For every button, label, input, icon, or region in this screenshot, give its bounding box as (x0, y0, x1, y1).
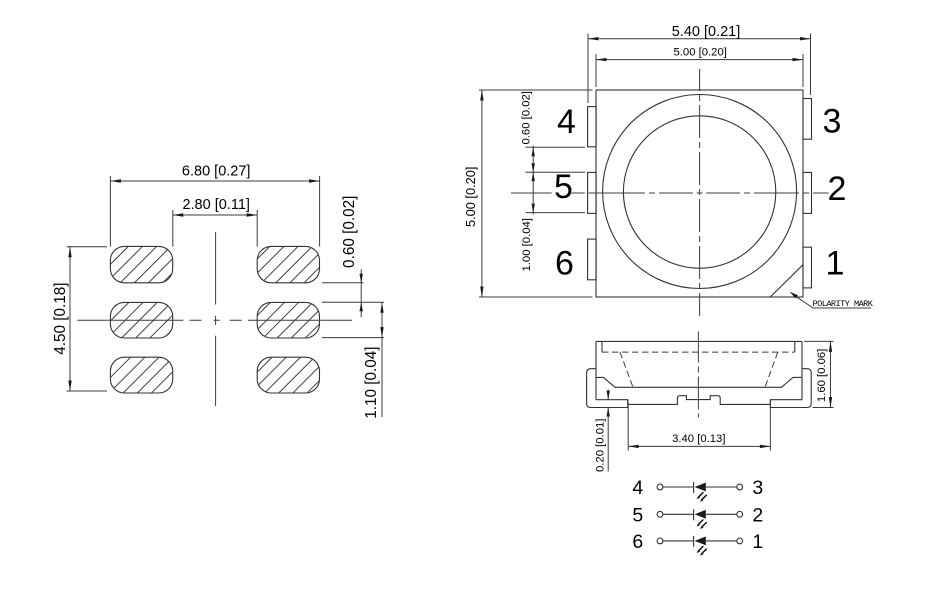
svg-text:5.00 [0.20]: 5.00 [0.20] (674, 46, 727, 58)
svg-text:1.60 [0.06]: 1.60 [0.06] (816, 349, 828, 402)
svg-text:5.00 [0.20]: 5.00 [0.20] (463, 167, 478, 227)
svg-text:4.50 [0.18]: 4.50 [0.18] (52, 282, 69, 354)
svg-text:5: 5 (632, 504, 643, 526)
svg-text:3: 3 (752, 477, 763, 499)
svg-text:POLARITY MARK: POLARITY MARK (813, 299, 874, 309)
svg-text:5.40 [0.21]: 5.40 [0.21] (672, 24, 741, 40)
svg-text:3: 3 (823, 103, 842, 141)
svg-text:1.10 [0.04]: 1.10 [0.04] (363, 346, 380, 418)
svg-text:1: 1 (752, 531, 763, 553)
svg-text:1.00 [0.04]: 1.00 [0.04] (521, 218, 533, 271)
svg-text:6: 6 (555, 245, 574, 283)
svg-text:5: 5 (554, 168, 573, 206)
svg-text:0.60 [0.02]: 0.60 [0.02] (341, 196, 358, 268)
svg-text:0.60 [0.02]: 0.60 [0.02] (521, 91, 533, 144)
svg-text:6.80 [0.27]: 6.80 [0.27] (182, 164, 251, 180)
svg-text:4: 4 (632, 477, 643, 499)
svg-text:3.40 [0.13]: 3.40 [0.13] (672, 433, 725, 445)
svg-text:2: 2 (752, 504, 763, 526)
svg-text:0.20 [0.01]: 0.20 [0.01] (595, 419, 607, 472)
svg-text:1: 1 (826, 245, 845, 283)
svg-text:2: 2 (828, 170, 847, 208)
svg-text:4: 4 (557, 103, 576, 141)
svg-text:6: 6 (632, 531, 643, 553)
svg-text:2.80 [0.11]: 2.80 [0.11] (182, 197, 249, 213)
